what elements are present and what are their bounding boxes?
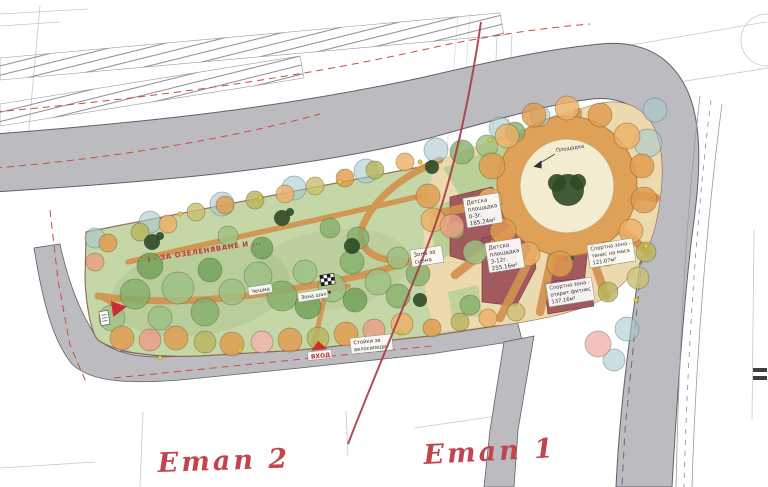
stage2-annotation: Етап 2 [156, 443, 290, 479]
info-sign-icon [99, 310, 110, 325]
stage1-annotation: Етап 1 [422, 433, 557, 471]
site-plan-drawing: Площадка [0, 0, 768, 487]
site-plan-scan: Площадка [0, 0, 768, 487]
label-playground-big: Детска площадка 3-12г. 255.16м² [485, 238, 525, 273]
label-playground-small: Детска площадка 0-3г. 185.24м² [463, 193, 503, 228]
